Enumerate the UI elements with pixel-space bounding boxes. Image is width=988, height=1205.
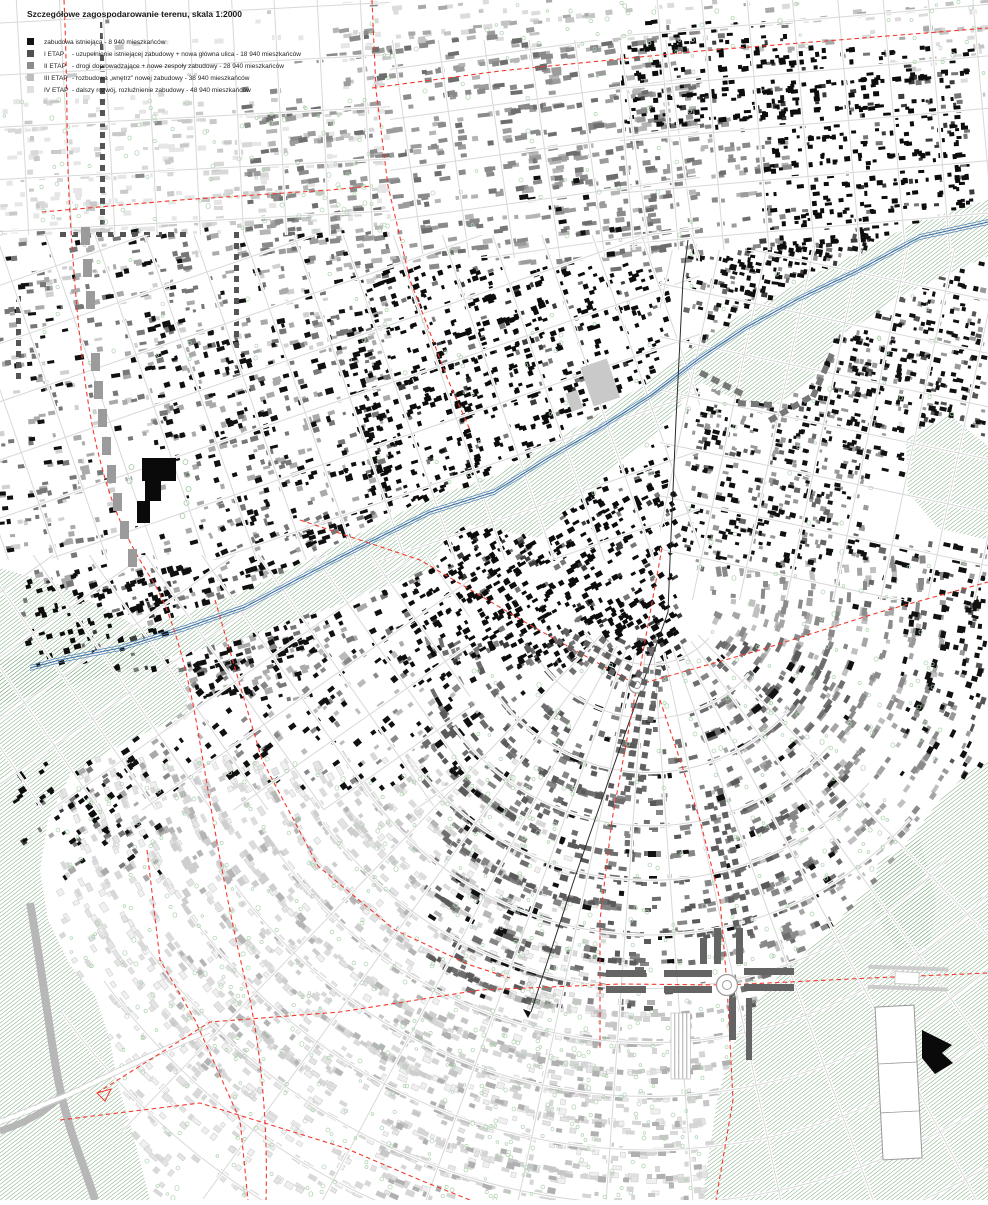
svg-text:I ETAP: I ETAP [44,51,64,58]
svg-text:zabudowa istniejąca - 8 940 mi: zabudowa istniejąca - 8 940 mieszkańców [44,39,166,46]
svg-text:II ETAP: II ETAP [44,63,66,70]
svg-text:III ETAP: III ETAP [44,75,68,82]
svg-text:IV ETAP: IV ETAP [44,87,68,94]
svg-text:- drogi doprowadzające + nowe: - drogi doprowadzające + nowe zespoły za… [72,63,284,70]
svg-text:- dalszy rozwój, rozluźnienie: - dalszy rozwój, rozluźnienie zabudowy -… [72,87,251,94]
svg-text:- rozbudowa „wnętrz” nowej zab: - rozbudowa „wnętrz” nowej zabudowy - 38… [72,75,250,82]
svg-text:- uzupełnienie istniejącej zab: - uzupełnienie istniejącej zabudowy + no… [72,51,301,58]
svg-text:Szczegółowe zagospodarowanie t: Szczegółowe zagospodarowanie terenu, ska… [27,9,242,19]
